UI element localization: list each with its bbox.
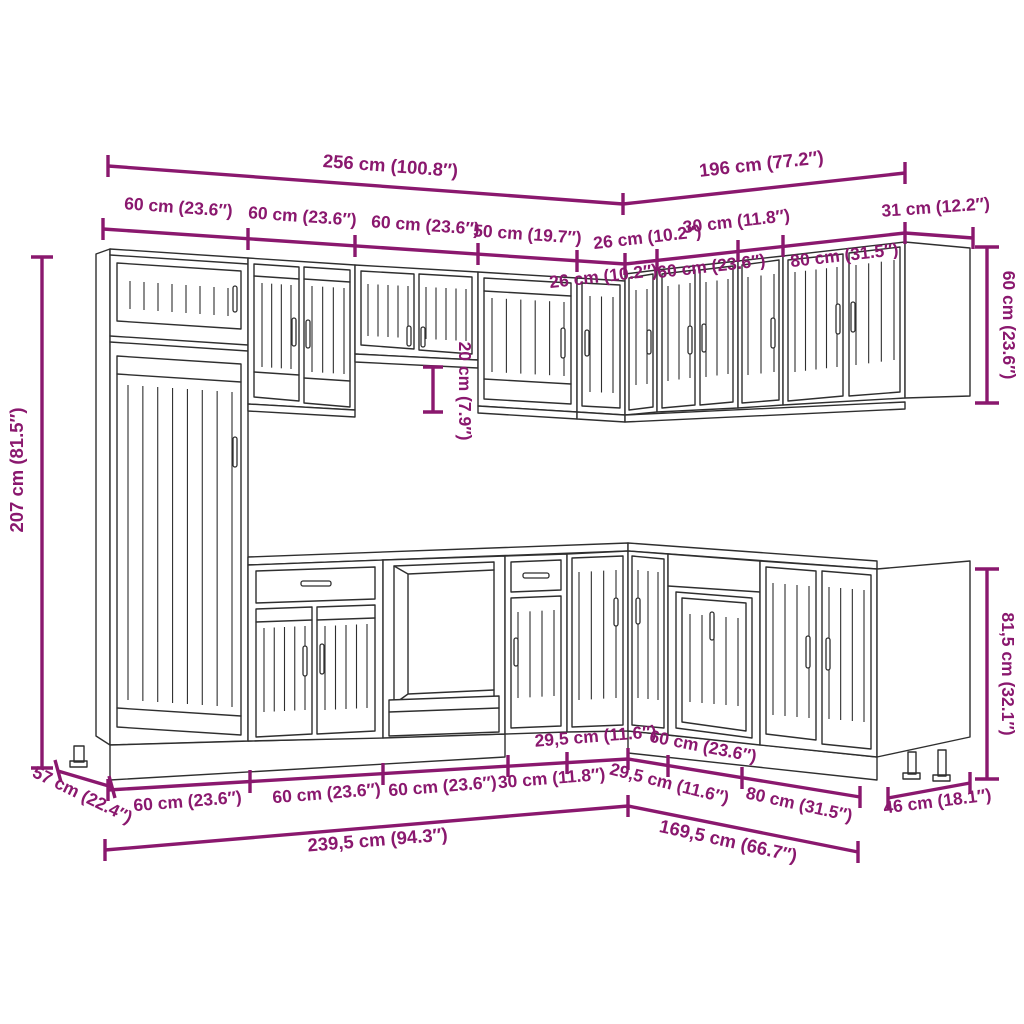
wall-cabinet-50 bbox=[478, 272, 577, 419]
dim-label-hood-gap: 20 cm (7.9″) bbox=[455, 342, 475, 441]
dim-label-base-height: 81,5 cm (32.1″) bbox=[998, 612, 1018, 735]
product-dimension-diagram: 256 cm (100.8″) 196 cm (77.2″) 60 cm (23… bbox=[0, 0, 1024, 1024]
dim-label-wall-w1: 60 cm (23.6″) bbox=[124, 193, 234, 221]
dim-label-wall-w7: 31 cm (12.2″) bbox=[881, 193, 991, 221]
kitchen-cabinet-diagram: 256 cm (100.8″) 196 cm (77.2″) 60 cm (23… bbox=[0, 0, 1024, 1024]
dim-label-wall-w3: 60 cm (23.6″) bbox=[371, 211, 481, 239]
dim-label-wall-w4: 50 cm (19.7″) bbox=[473, 220, 583, 248]
wall-cabinet-60-a bbox=[248, 258, 355, 417]
dim-label-wall-w2: 60 cm (23.6″) bbox=[248, 202, 358, 230]
dim-label-top-total-left: 256 cm (100.8″) bbox=[322, 150, 459, 181]
dim-label-base-b2: 60 cm (23.6″) bbox=[272, 779, 382, 807]
dim-line-top-total-right bbox=[623, 173, 905, 204]
dim-label-base-total-left: 239,5 cm (94.3″) bbox=[307, 824, 449, 856]
dim-label-base-b3: 60 cm (23.6″) bbox=[388, 772, 498, 800]
dim-label-tall-height: 207 cm (81.5″) bbox=[6, 407, 27, 532]
wall-cabinet-corner-26 bbox=[577, 278, 625, 422]
dim-label-base-b1: 60 cm (23.6″) bbox=[133, 787, 243, 815]
dim-label-base-b4: 30 cm (11.8″) bbox=[497, 764, 606, 792]
dim-label-base-total-right: 169,5 cm (66.7″) bbox=[658, 815, 800, 866]
dim-label-base-b8: 80 cm (31.5″) bbox=[744, 783, 854, 826]
dim-label-top-total-right: 196 cm (77.2″) bbox=[698, 146, 825, 181]
dim-label-wall-height: 60 cm (23.6″) bbox=[999, 271, 1019, 380]
cabinet-line-art bbox=[70, 242, 970, 781]
dim-label-wall-w6: 30 cm (11.8″) bbox=[682, 205, 791, 237]
tall-pantry-cabinet bbox=[70, 249, 248, 772]
